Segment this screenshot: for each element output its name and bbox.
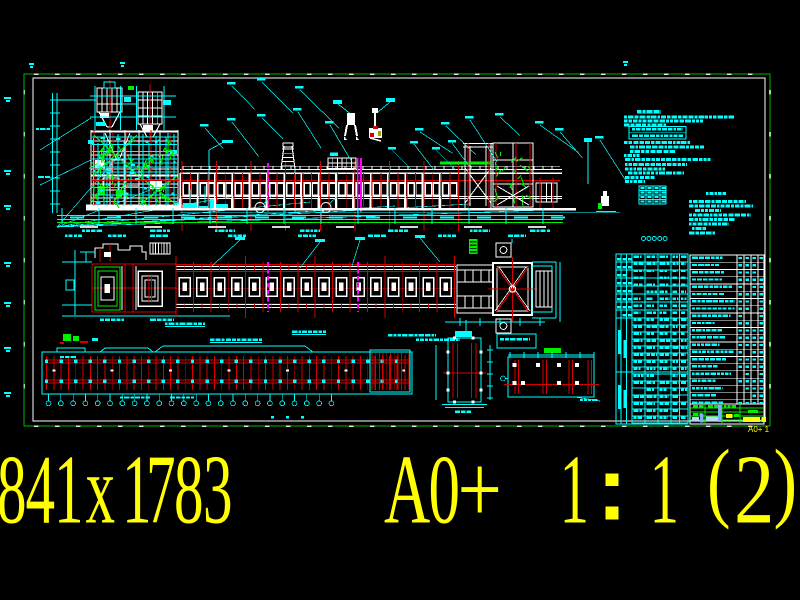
svg-text:8: 8 bbox=[0, 435, 27, 544]
svg-text:+: + bbox=[458, 436, 502, 544]
svg-text:8: 8 bbox=[174, 435, 204, 544]
svg-text:7: 7 bbox=[146, 435, 176, 544]
svg-text:3: 3 bbox=[203, 435, 233, 544]
svg-text:4: 4 bbox=[26, 435, 56, 544]
svg-text:x: x bbox=[86, 435, 116, 544]
svg-text:A: A bbox=[384, 435, 430, 544]
svg-text:2: 2 bbox=[734, 436, 774, 544]
svg-text:1: 1 bbox=[560, 435, 590, 544]
svg-text:1: 1 bbox=[650, 435, 680, 544]
svg-text:1: 1 bbox=[54, 435, 84, 544]
svg-text:): ) bbox=[774, 432, 798, 530]
svg-text:(: ( bbox=[707, 432, 731, 530]
svg-text:0: 0 bbox=[429, 434, 461, 544]
svg-text:A0+ 1: A0+ 1 bbox=[748, 425, 770, 434]
